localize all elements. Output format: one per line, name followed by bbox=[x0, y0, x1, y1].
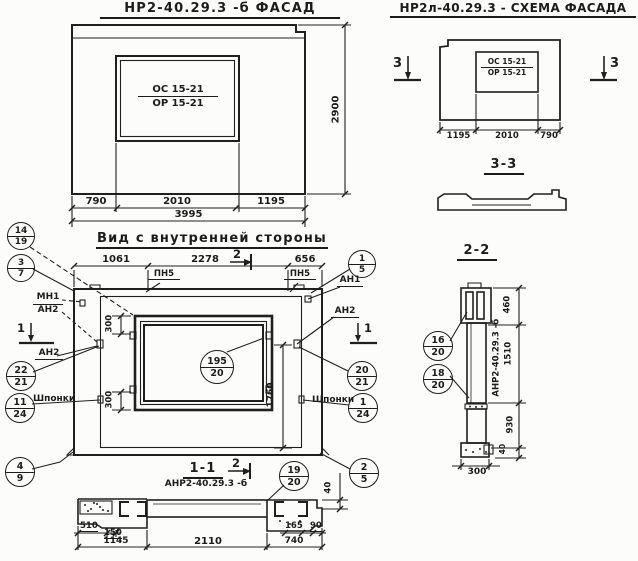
section-marker-3-right: 3 bbox=[610, 57, 620, 71]
inner-dim-1061: 1061 bbox=[84, 254, 148, 265]
callout-2-5: 25 bbox=[349, 458, 379, 488]
facade-dim-790: 790 bbox=[74, 196, 118, 207]
s22-dim-40: 40 bbox=[499, 440, 507, 458]
label-an2-right: АН2 bbox=[331, 307, 359, 318]
facade-dim-3995: 3995 bbox=[72, 209, 305, 220]
scheme-opening-mark: ОС 15-21 ОР 15-21 bbox=[481, 58, 533, 78]
section-3-3-title: 3-3 bbox=[484, 158, 524, 175]
section-marker-2-top: 2 bbox=[233, 248, 241, 261]
s11-dim-1145: 1145 bbox=[96, 537, 136, 547]
inner-view-title: Вид с внутренней стороны bbox=[96, 232, 328, 249]
section-1-1-title: 1-1 bbox=[183, 462, 223, 479]
callout-14-19: 1419 bbox=[7, 222, 35, 250]
facade-title: НР2-40.29.3 -б ФАСАД bbox=[100, 2, 340, 19]
dim-40-right: 40 bbox=[324, 478, 333, 498]
scheme-dim-790: 790 bbox=[537, 132, 561, 141]
label-mn1-an2: МН1 АН2 bbox=[33, 293, 63, 316]
label-mn1: МН1 bbox=[33, 293, 63, 305]
facade-dim-2010: 2010 bbox=[118, 196, 236, 207]
label-an2-left: АН2 bbox=[35, 349, 63, 360]
label-an2: АН2 bbox=[33, 305, 63, 316]
label-shponki-left: Шпонки bbox=[33, 395, 75, 405]
inner-dim-1760: 1760 bbox=[267, 378, 277, 412]
callout-22-21: 2221 bbox=[6, 361, 36, 391]
callout-19-20: 1920 bbox=[279, 461, 309, 491]
facade-dim-1195: 1195 bbox=[236, 196, 306, 207]
callout-4-9: 49 bbox=[5, 457, 35, 487]
scheme-dim-2010: 2010 bbox=[477, 132, 537, 141]
s11-dim-90: 90 bbox=[310, 522, 322, 532]
callout-195-20: 19520 bbox=[200, 350, 234, 384]
section-2-2-title: 2-2 bbox=[457, 244, 497, 261]
facade-dim-2900: 2900 bbox=[331, 90, 342, 130]
section-marker-2-bottom: 2 bbox=[232, 457, 240, 470]
inner-dim-656: 656 bbox=[285, 254, 325, 265]
callout-11-24: 1124 bbox=[5, 393, 35, 423]
section-marker-3-left: 3 bbox=[393, 57, 403, 71]
section-marker-1-right: 1 bbox=[364, 322, 372, 335]
opening-mark-os: ОС 15-21 bbox=[138, 84, 218, 97]
s11-dim-740: 740 bbox=[277, 537, 311, 547]
s22-dim-460: 460 bbox=[503, 292, 512, 318]
opening-mark-os: ОС 15-21 bbox=[481, 58, 533, 68]
inner-dim-300-top: 300 bbox=[105, 311, 114, 337]
s22-dim-300: 300 bbox=[462, 468, 492, 478]
callout-1-5: 15 bbox=[348, 250, 376, 278]
s11-dim-165: 165 bbox=[285, 522, 303, 531]
blueprint-canvas: НР2-40.29.3 -б ФАСАД НР2л-40.29.3 - СХЕМ… bbox=[0, 0, 638, 561]
callout-3-7: 37 bbox=[7, 254, 35, 282]
scheme-dim-1195: 1195 bbox=[441, 132, 476, 141]
label-pn5-right: ПН5 bbox=[284, 270, 316, 280]
callout-1-24: 124 bbox=[348, 393, 378, 423]
drawing-linework bbox=[0, 0, 638, 561]
callout-20-21: 2021 bbox=[347, 361, 377, 391]
inner-dim-300-bottom: 300 bbox=[105, 387, 114, 413]
section-marker-1-left: 1 bbox=[17, 322, 25, 335]
scheme-title: НР2л-40.29.3 - СХЕМА ФАСАДА bbox=[390, 2, 636, 18]
section-2-2-panel-mark: АНР2-40.29.3 -б bbox=[492, 315, 501, 401]
opening-mark-or: ОР 15-21 bbox=[481, 68, 533, 77]
s11-dim-2110: 2110 bbox=[185, 536, 231, 547]
opening-mark-or: ОР 15-21 bbox=[138, 97, 218, 109]
label-pn5-left: ПН5 bbox=[148, 270, 180, 280]
s11-dim-510: 510 bbox=[80, 522, 98, 532]
s22-dim-930: 930 bbox=[506, 412, 515, 438]
callout-18-20: 1820 bbox=[423, 364, 453, 394]
facade-opening-mark: ОС 15-21 ОР 15-21 bbox=[138, 84, 218, 109]
section-1-1-panel-mark: АНР2-40.29.3 -б bbox=[157, 480, 255, 490]
s22-dim-1510: 1510 bbox=[504, 338, 513, 370]
callout-16-20: 1620 bbox=[423, 331, 453, 361]
